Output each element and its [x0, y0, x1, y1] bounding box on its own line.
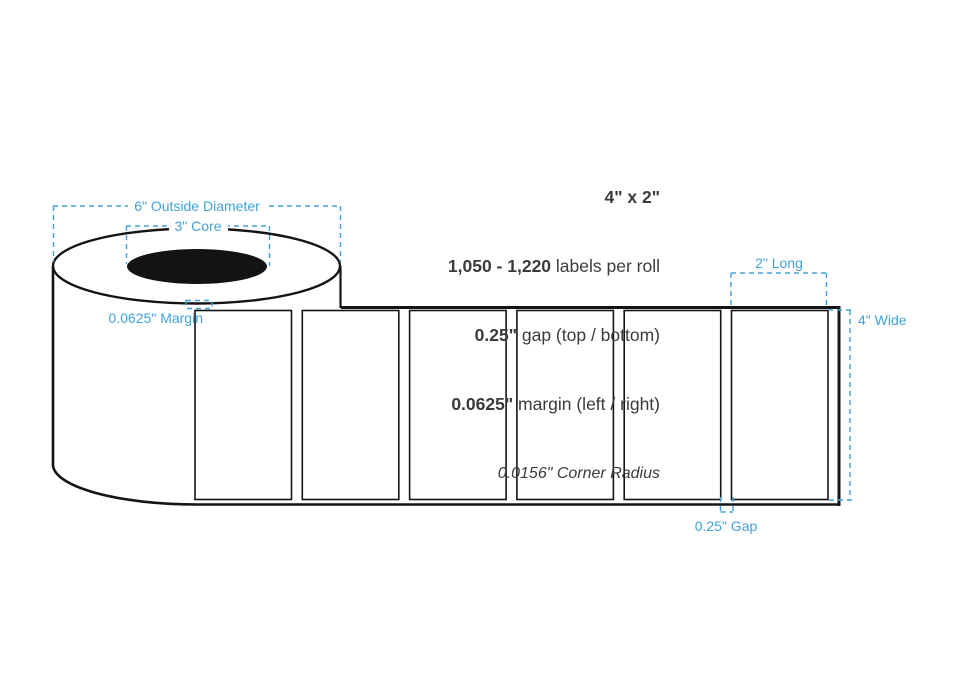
- annotation-margin: 0.0625" Margin: [70, 310, 203, 326]
- spec-labels-per-roll: 1,050 - 1,220 labels per roll: [448, 255, 660, 278]
- spec-labels-value: 1,050 - 1,220: [448, 256, 551, 276]
- spec-gap: 0.25" gap (top / bottom): [448, 324, 660, 347]
- label-rect: [302, 311, 399, 500]
- label-rect: [195, 311, 292, 500]
- spec-corner-radius: 0.0156" Corner Radius: [448, 462, 660, 485]
- spec-gap-suffix: gap (top / bottom): [517, 325, 660, 345]
- annotation-gap-text: 0.25" Gap: [695, 518, 758, 534]
- spec-gap-value: 0.25": [475, 325, 517, 345]
- annotation-gap: 0.25" Gap: [680, 518, 772, 534]
- spec-size: 4" x 2": [448, 186, 660, 209]
- annotation-core: 3" Core: [126, 218, 270, 234]
- spec-margin-value: 0.0625": [451, 394, 513, 414]
- label-roll-diagram: 4" x 2" 1,050 - 1,220 labels per roll 0.…: [0, 0, 962, 694]
- annotation-margin-text: 0.0625" Margin: [109, 310, 203, 326]
- annotation-outside-diameter-text: 6" Outside Diameter: [128, 198, 266, 214]
- annotation-wide: 4" Wide: [858, 312, 907, 328]
- annotation-wide-text: 4" Wide: [858, 312, 907, 328]
- annotation-long: 2" Long: [731, 255, 827, 271]
- spec-margin-suffix: margin (left / right): [513, 394, 660, 414]
- annotation-long-text: 2" Long: [755, 255, 803, 271]
- spec-margin: 0.0625" margin (left / right): [448, 393, 660, 416]
- spec-block: 4" x 2" 1,050 - 1,220 labels per roll 0.…: [448, 140, 660, 531]
- roll-core-hole: [127, 249, 267, 284]
- annotation-outside-diameter: 6" Outside Diameter: [53, 198, 341, 214]
- spec-size-value: 4" x 2": [604, 187, 660, 207]
- spec-labels-suffix: labels per roll: [551, 256, 660, 276]
- label-rect: [732, 311, 829, 500]
- annotation-core-text: 3" Core: [169, 218, 228, 234]
